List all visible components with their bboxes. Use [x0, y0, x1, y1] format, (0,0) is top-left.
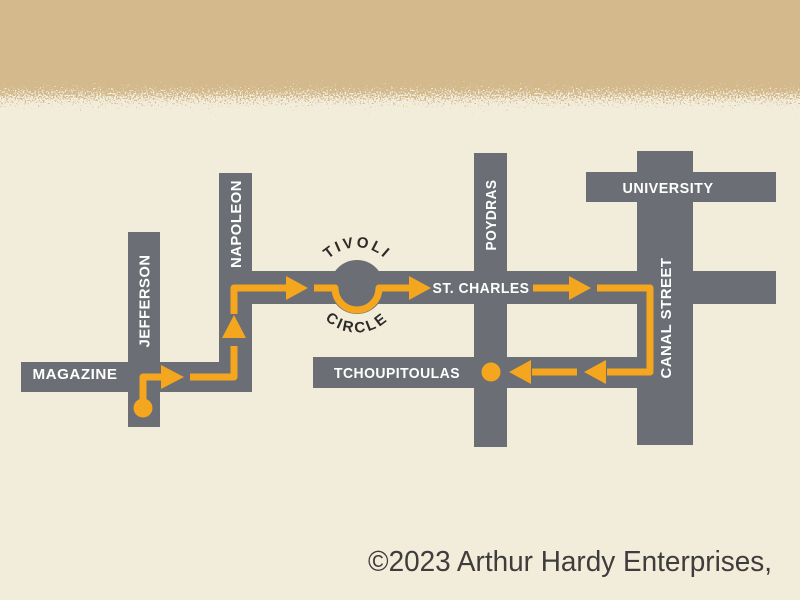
- street-label-canal-street: CANAL STREET: [658, 258, 675, 379]
- map-graphic: MAGAZINE JEFFERSON NAPOLEON ST. CHARLES …: [0, 0, 800, 600]
- street-label-tchoupitoulas: TCHOUPITOULAS: [334, 365, 460, 382]
- route-start-dot: [134, 399, 153, 418]
- street-label-university: UNIVERSITY: [623, 180, 714, 197]
- street-label-magazine: MAGAZINE: [33, 366, 118, 383]
- street-label-st-charles: ST. CHARLES: [433, 280, 530, 297]
- parade-route-map: MAGAZINE JEFFERSON NAPOLEON ST. CHARLES …: [0, 0, 800, 600]
- street-label-poydras: POYDRAS: [483, 180, 500, 251]
- copyright-text: ©2023 Arthur Hardy Enterprises,: [368, 546, 772, 578]
- route-end-dot: [482, 363, 501, 382]
- tivoli-circle-label-top: TIVOLI: [320, 234, 394, 262]
- street-label-jefferson: JEFFERSON: [137, 255, 154, 348]
- street-label-napoleon: NAPOLEON: [228, 180, 245, 268]
- tivoli-circle-label-top-text: TIVOLI: [320, 234, 394, 262]
- header-texture-band: [0, 0, 800, 140]
